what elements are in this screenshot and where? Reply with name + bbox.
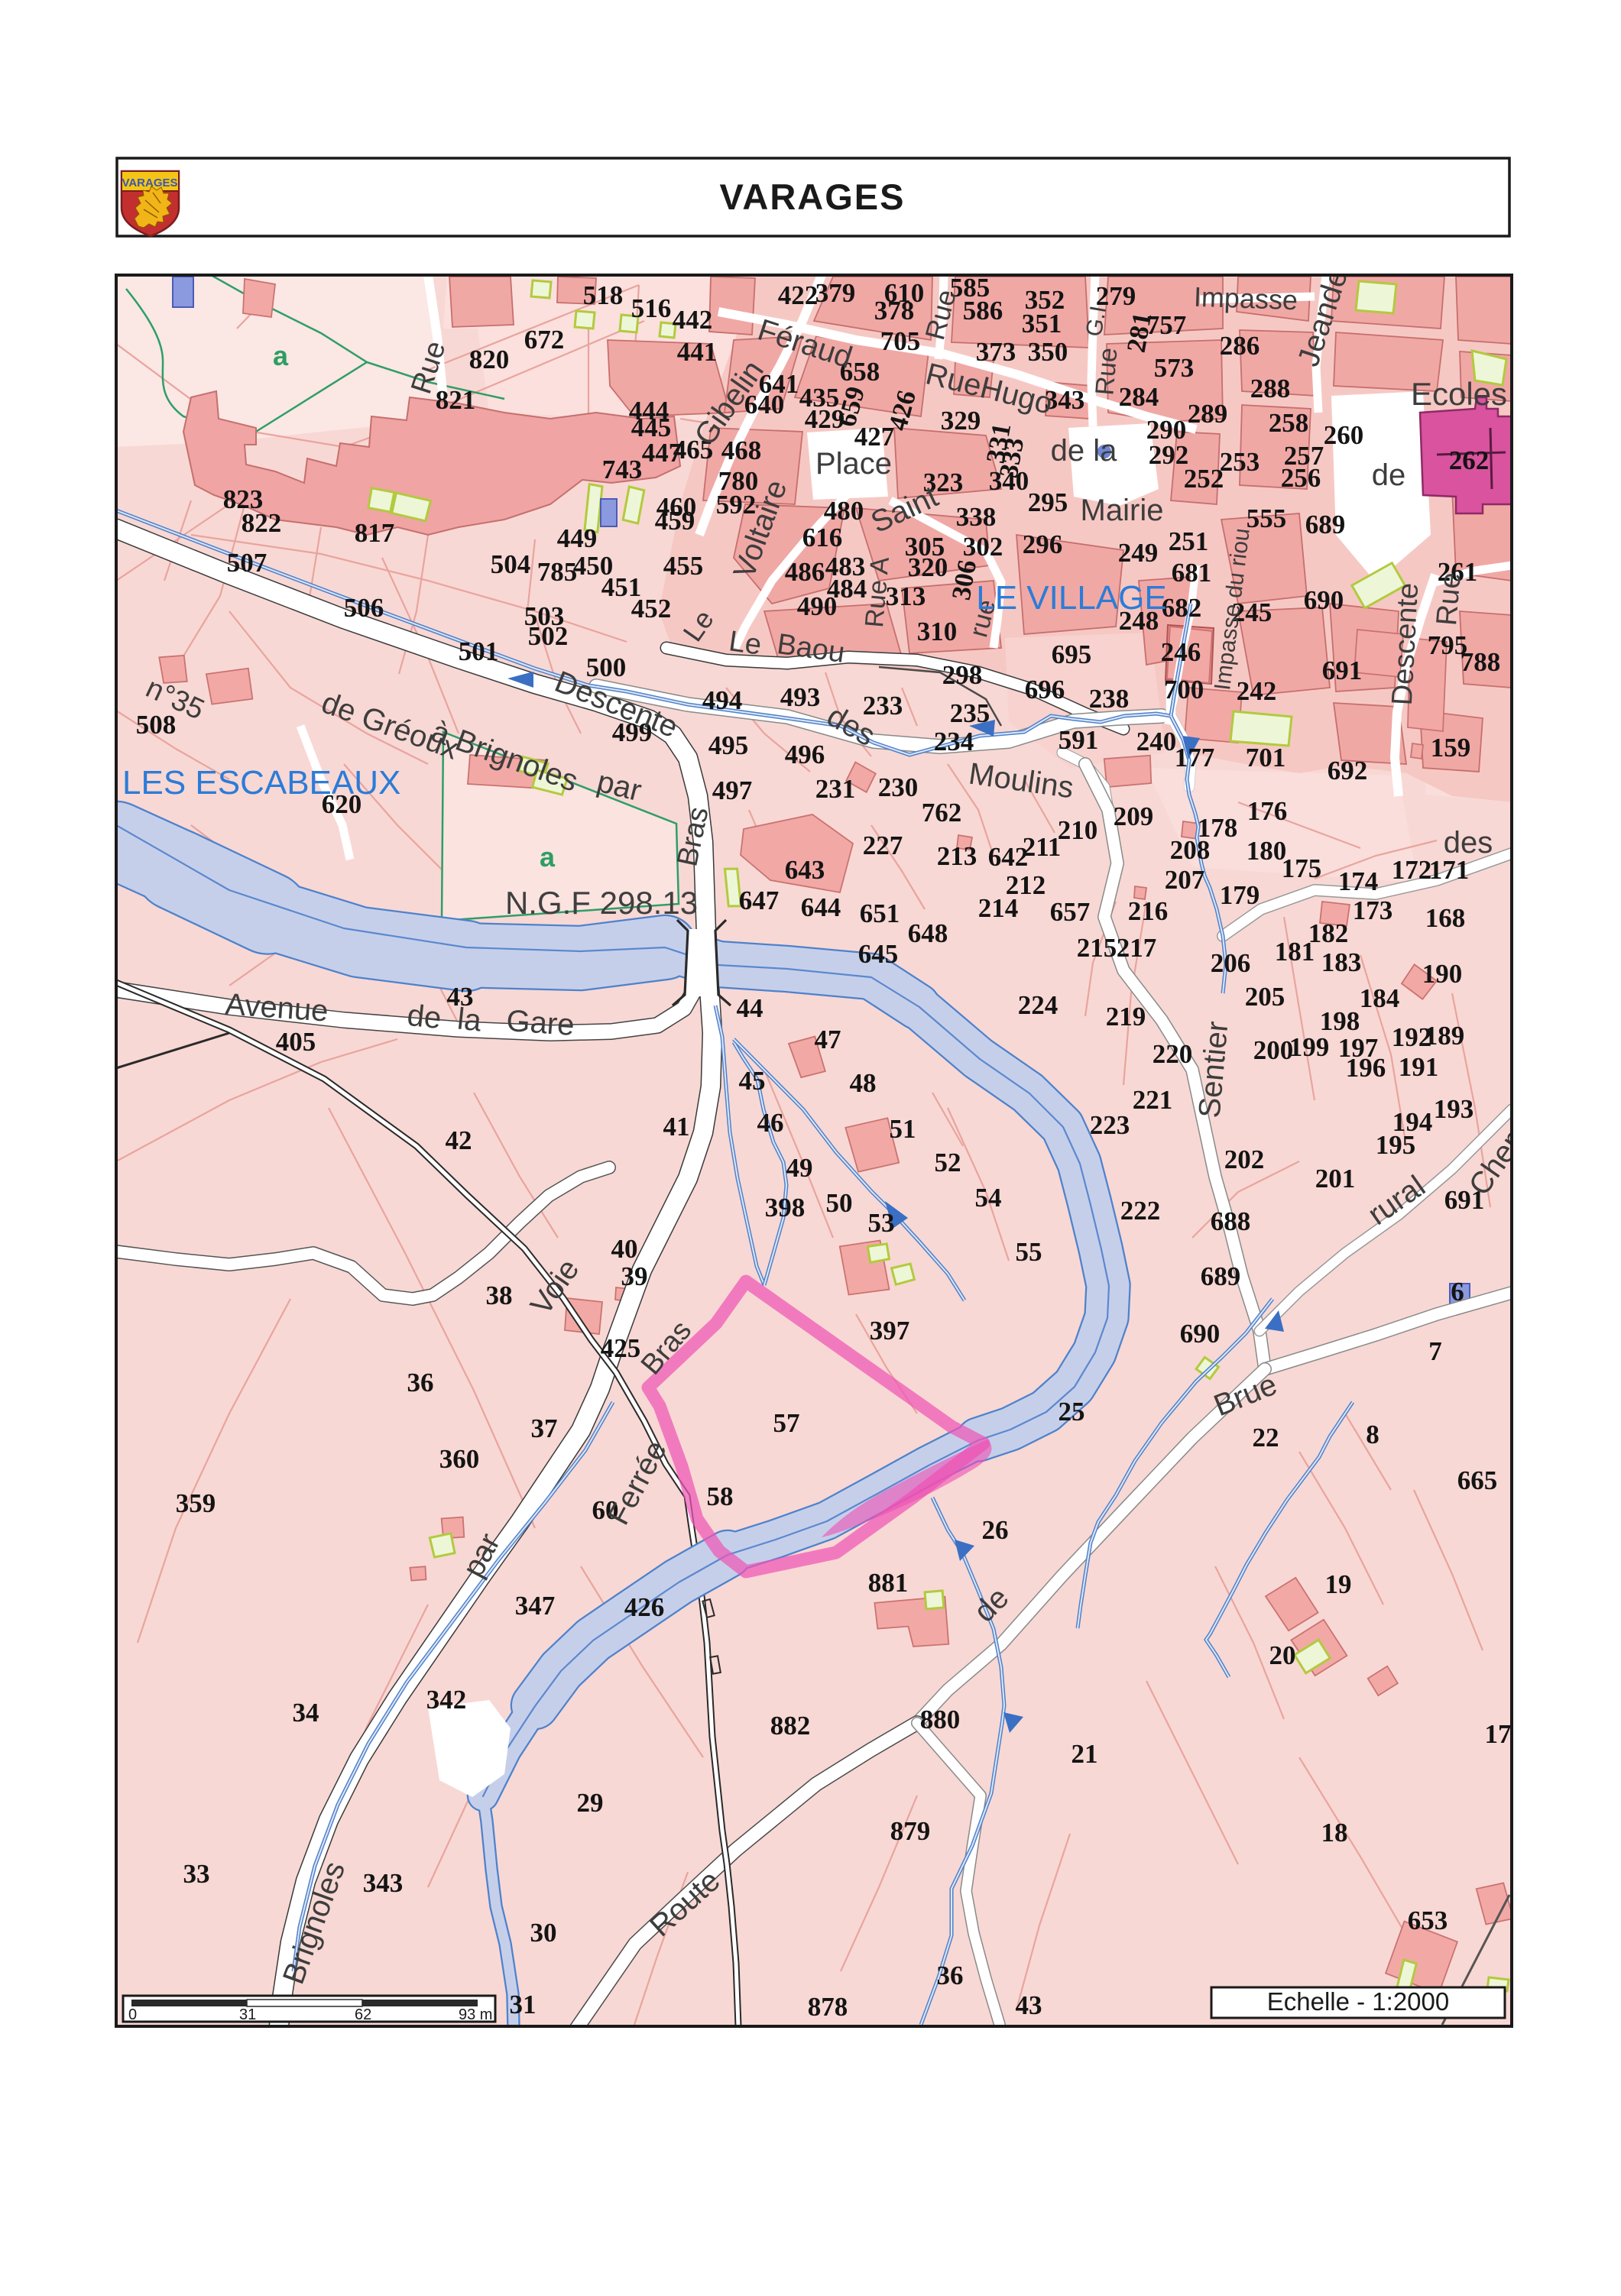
svg-text:50: 50 bbox=[826, 1188, 853, 1218]
svg-text:Gare: Gare bbox=[505, 1004, 575, 1042]
svg-text:690: 690 bbox=[1180, 1319, 1221, 1349]
svg-text:648: 648 bbox=[908, 918, 948, 948]
svg-text:262: 262 bbox=[1449, 445, 1490, 475]
svg-text:42: 42 bbox=[446, 1125, 472, 1155]
svg-text:41: 41 bbox=[663, 1112, 690, 1142]
svg-text:52: 52 bbox=[935, 1148, 961, 1177]
svg-text:230: 230 bbox=[878, 772, 919, 802]
svg-text:878: 878 bbox=[808, 1992, 848, 2022]
svg-text:17: 17 bbox=[1485, 1719, 1512, 1749]
svg-text:284: 284 bbox=[1119, 382, 1159, 412]
svg-text:189: 189 bbox=[1425, 1021, 1465, 1051]
svg-text:159: 159 bbox=[1431, 733, 1471, 763]
svg-text:26: 26 bbox=[982, 1515, 1009, 1545]
svg-text:de: de bbox=[406, 999, 443, 1035]
svg-text:0: 0 bbox=[128, 2006, 137, 2023]
svg-text:a: a bbox=[540, 841, 556, 873]
svg-text:405: 405 bbox=[276, 1027, 316, 1057]
svg-text:46: 46 bbox=[757, 1108, 784, 1138]
svg-text:VARAGES: VARAGES bbox=[720, 176, 906, 217]
svg-text:490: 490 bbox=[797, 591, 838, 621]
svg-text:643: 643 bbox=[785, 855, 825, 885]
svg-text:Avenue: Avenue bbox=[224, 987, 329, 1028]
svg-text:Ecoles: Ecoles bbox=[1411, 376, 1507, 412]
svg-text:LE VILLAGE: LE VILLAGE bbox=[976, 579, 1166, 617]
svg-text:688: 688 bbox=[1211, 1206, 1251, 1236]
svg-text:455: 455 bbox=[663, 551, 704, 581]
svg-text:452: 452 bbox=[631, 594, 672, 623]
svg-text:199: 199 bbox=[1289, 1032, 1330, 1062]
svg-text:494: 494 bbox=[702, 685, 743, 715]
svg-text:881: 881 bbox=[868, 1568, 909, 1598]
svg-text:34: 34 bbox=[293, 1698, 319, 1728]
svg-text:211: 211 bbox=[1023, 832, 1062, 862]
svg-text:449: 449 bbox=[557, 523, 598, 553]
svg-text:497: 497 bbox=[712, 776, 753, 805]
svg-text:223: 223 bbox=[1090, 1110, 1130, 1140]
svg-text:705: 705 bbox=[880, 326, 921, 356]
svg-text:647: 647 bbox=[739, 886, 780, 915]
svg-text:700: 700 bbox=[1164, 675, 1204, 704]
svg-text:817: 817 bbox=[355, 518, 395, 548]
svg-text:288: 288 bbox=[1250, 374, 1291, 403]
svg-text:379: 379 bbox=[815, 278, 856, 308]
svg-text:196: 196 bbox=[1346, 1053, 1386, 1083]
svg-text:49: 49 bbox=[786, 1153, 813, 1183]
svg-text:518: 518 bbox=[583, 280, 624, 310]
svg-text:31: 31 bbox=[510, 1990, 537, 2019]
svg-text:Place: Place bbox=[815, 447, 892, 481]
svg-text:373: 373 bbox=[976, 337, 1016, 367]
svg-text:215: 215 bbox=[1077, 933, 1117, 963]
svg-text:253: 253 bbox=[1220, 447, 1260, 477]
svg-text:31: 31 bbox=[239, 2006, 256, 2023]
svg-text:182: 182 bbox=[1308, 918, 1349, 948]
svg-text:338: 338 bbox=[956, 502, 997, 532]
svg-text:320: 320 bbox=[908, 552, 948, 582]
svg-text:201: 201 bbox=[1315, 1164, 1356, 1193]
svg-text:58: 58 bbox=[707, 1482, 734, 1511]
svg-text:180: 180 bbox=[1247, 836, 1287, 866]
svg-text:38: 38 bbox=[486, 1281, 513, 1310]
svg-text:502: 502 bbox=[528, 621, 569, 651]
svg-text:689: 689 bbox=[1305, 510, 1346, 539]
svg-text:Impasse: Impasse bbox=[1193, 281, 1298, 316]
svg-text:Rue A: Rue A bbox=[860, 555, 895, 629]
svg-text:672: 672 bbox=[524, 325, 565, 355]
svg-text:47: 47 bbox=[815, 1025, 841, 1054]
svg-text:347: 347 bbox=[515, 1591, 556, 1621]
svg-text:179: 179 bbox=[1220, 880, 1260, 910]
svg-text:681: 681 bbox=[1172, 558, 1212, 588]
svg-text:682: 682 bbox=[1162, 593, 1202, 623]
svg-text:30: 30 bbox=[530, 1918, 557, 1948]
svg-text:62: 62 bbox=[355, 2006, 371, 2023]
svg-text:822: 822 bbox=[242, 508, 282, 538]
svg-text:45: 45 bbox=[739, 1066, 766, 1096]
svg-text:8: 8 bbox=[1366, 1420, 1379, 1449]
svg-text:184: 184 bbox=[1360, 983, 1400, 1013]
svg-text:493: 493 bbox=[780, 682, 821, 712]
svg-text:279: 279 bbox=[1096, 281, 1136, 311]
svg-text:689: 689 bbox=[1201, 1261, 1241, 1291]
svg-text:19: 19 bbox=[1325, 1569, 1352, 1599]
svg-text:222: 222 bbox=[1120, 1196, 1161, 1226]
svg-text:359: 359 bbox=[176, 1488, 216, 1518]
svg-text:217: 217 bbox=[1117, 933, 1157, 963]
svg-text:501: 501 bbox=[459, 636, 499, 666]
svg-text:195: 195 bbox=[1376, 1130, 1416, 1160]
svg-text:G.I: G.I bbox=[1081, 304, 1111, 338]
svg-text:442: 442 bbox=[673, 305, 713, 335]
svg-text:VARAGES: VARAGES bbox=[122, 176, 177, 189]
svg-text:208: 208 bbox=[1170, 835, 1211, 865]
svg-text:459: 459 bbox=[655, 506, 695, 536]
svg-text:193: 193 bbox=[1434, 1094, 1474, 1124]
svg-text:29: 29 bbox=[577, 1788, 604, 1818]
svg-text:231: 231 bbox=[815, 774, 856, 804]
svg-text:398: 398 bbox=[765, 1193, 806, 1222]
svg-text:216: 216 bbox=[1128, 896, 1169, 926]
svg-text:653: 653 bbox=[1408, 1906, 1448, 1935]
svg-text:40: 40 bbox=[611, 1234, 638, 1264]
svg-text:252: 252 bbox=[1184, 464, 1224, 494]
svg-text:329: 329 bbox=[941, 406, 981, 436]
svg-text:441: 441 bbox=[677, 337, 718, 367]
svg-text:298: 298 bbox=[942, 660, 983, 690]
svg-text:Le: Le bbox=[727, 625, 763, 661]
svg-text:496: 496 bbox=[785, 740, 825, 769]
svg-text:260: 260 bbox=[1324, 420, 1364, 450]
svg-text:Rue: Rue bbox=[1431, 571, 1467, 627]
svg-text:586: 586 bbox=[963, 296, 1003, 325]
svg-text:397: 397 bbox=[870, 1316, 910, 1346]
svg-text:426: 426 bbox=[624, 1592, 665, 1622]
svg-text:54: 54 bbox=[975, 1183, 1002, 1213]
svg-text:504: 504 bbox=[491, 549, 531, 579]
svg-text:651: 651 bbox=[860, 899, 900, 928]
svg-text:18: 18 bbox=[1321, 1818, 1348, 1847]
svg-text:480: 480 bbox=[824, 496, 864, 526]
svg-text:55: 55 bbox=[1016, 1237, 1042, 1267]
svg-text:37: 37 bbox=[531, 1414, 558, 1443]
svg-text:645: 645 bbox=[858, 939, 899, 969]
svg-text:Mairie: Mairie bbox=[1081, 494, 1164, 527]
svg-text:LES ESCABEAUX: LES ESCABEAUX bbox=[122, 764, 400, 801]
svg-text:690: 690 bbox=[1304, 585, 1344, 615]
svg-text:351: 351 bbox=[1022, 309, 1062, 338]
svg-text:22: 22 bbox=[1253, 1423, 1279, 1452]
svg-text:507: 507 bbox=[227, 548, 267, 578]
svg-text:591: 591 bbox=[1059, 725, 1099, 755]
svg-text:43: 43 bbox=[1016, 1990, 1042, 2020]
svg-text:206: 206 bbox=[1211, 948, 1251, 978]
svg-text:des: des bbox=[1444, 826, 1493, 860]
svg-text:36: 36 bbox=[937, 1961, 964, 1990]
svg-text:36: 36 bbox=[407, 1368, 434, 1397]
svg-text:555: 555 bbox=[1247, 504, 1287, 533]
svg-text:616: 616 bbox=[802, 523, 843, 552]
svg-text:249: 249 bbox=[1118, 538, 1159, 568]
svg-text:310: 310 bbox=[917, 617, 958, 646]
svg-text:Descente: Descente bbox=[1386, 582, 1425, 707]
svg-text:177: 177 bbox=[1175, 743, 1215, 772]
svg-text:205: 205 bbox=[1245, 982, 1285, 1012]
svg-text:202: 202 bbox=[1224, 1145, 1265, 1174]
svg-text:251: 251 bbox=[1169, 526, 1209, 556]
svg-text:695: 695 bbox=[1052, 640, 1092, 669]
svg-text:51: 51 bbox=[890, 1114, 916, 1144]
svg-text:516: 516 bbox=[631, 293, 672, 323]
svg-text:a: a bbox=[273, 340, 289, 371]
svg-text:422: 422 bbox=[778, 280, 819, 310]
svg-text:343: 343 bbox=[363, 1868, 404, 1898]
svg-text:235: 235 bbox=[950, 698, 990, 728]
svg-text:644: 644 bbox=[801, 892, 841, 922]
svg-text:486: 486 bbox=[785, 557, 825, 587]
svg-text:de la: de la bbox=[1051, 434, 1117, 468]
svg-text:25: 25 bbox=[1059, 1397, 1085, 1426]
svg-text:240: 240 bbox=[1136, 727, 1177, 756]
svg-text:la: la bbox=[456, 1002, 483, 1038]
svg-text:227: 227 bbox=[863, 831, 903, 860]
svg-text:207: 207 bbox=[1165, 865, 1205, 895]
svg-text:696: 696 bbox=[1025, 675, 1065, 704]
svg-text:93 m: 93 m bbox=[459, 2006, 492, 2023]
svg-text:701: 701 bbox=[1246, 743, 1286, 772]
svg-text:200: 200 bbox=[1253, 1035, 1294, 1065]
svg-text:785: 785 bbox=[537, 557, 578, 587]
svg-text:173: 173 bbox=[1353, 895, 1393, 925]
svg-text:39: 39 bbox=[621, 1261, 648, 1291]
svg-text:762: 762 bbox=[922, 798, 962, 827]
svg-text:788: 788 bbox=[1461, 647, 1501, 677]
svg-text:743: 743 bbox=[602, 455, 643, 484]
svg-text:360: 360 bbox=[439, 1444, 480, 1474]
svg-text:238: 238 bbox=[1089, 684, 1130, 714]
svg-text:21: 21 bbox=[1071, 1739, 1098, 1769]
svg-text:6: 6 bbox=[1451, 1277, 1464, 1307]
svg-text:172: 172 bbox=[1392, 855, 1432, 885]
svg-text:N.G.F 298.13: N.G.F 298.13 bbox=[505, 885, 698, 921]
svg-text:425: 425 bbox=[601, 1333, 641, 1363]
svg-text:174: 174 bbox=[1338, 866, 1379, 896]
svg-text:495: 495 bbox=[708, 730, 749, 760]
svg-text:219: 219 bbox=[1106, 1002, 1146, 1031]
svg-text:506: 506 bbox=[344, 593, 384, 623]
svg-text:234: 234 bbox=[934, 727, 974, 756]
svg-text:224: 224 bbox=[1018, 990, 1059, 1020]
svg-text:258: 258 bbox=[1269, 408, 1309, 438]
svg-text:33: 33 bbox=[183, 1859, 210, 1889]
svg-text:242: 242 bbox=[1237, 676, 1277, 706]
svg-text:de: de bbox=[1372, 458, 1406, 492]
svg-text:342: 342 bbox=[426, 1685, 467, 1715]
svg-text:Rue: Rue bbox=[1090, 346, 1123, 396]
svg-text:Echelle - 1:2000: Echelle - 1:2000 bbox=[1267, 1987, 1450, 2016]
svg-text:468: 468 bbox=[721, 436, 762, 465]
svg-text:246: 246 bbox=[1161, 637, 1201, 667]
svg-text:879: 879 bbox=[890, 1816, 931, 1846]
svg-text:210: 210 bbox=[1058, 815, 1098, 845]
svg-text:44: 44 bbox=[737, 993, 763, 1023]
svg-text:183: 183 bbox=[1321, 947, 1362, 977]
svg-text:378: 378 bbox=[874, 296, 915, 325]
svg-text:48: 48 bbox=[850, 1068, 877, 1098]
svg-text:302: 302 bbox=[963, 532, 1003, 562]
svg-text:289: 289 bbox=[1188, 399, 1228, 429]
svg-text:190: 190 bbox=[1422, 959, 1463, 989]
svg-text:657: 657 bbox=[1050, 897, 1091, 927]
svg-text:176: 176 bbox=[1247, 796, 1288, 826]
svg-text:175: 175 bbox=[1282, 853, 1322, 883]
svg-text:213: 213 bbox=[937, 841, 977, 871]
svg-text:292: 292 bbox=[1149, 440, 1189, 470]
svg-text:221: 221 bbox=[1133, 1085, 1173, 1115]
svg-text:692: 692 bbox=[1328, 756, 1368, 785]
svg-text:7: 7 bbox=[1428, 1336, 1442, 1366]
svg-text:665: 665 bbox=[1457, 1465, 1498, 1495]
svg-text:295: 295 bbox=[1028, 487, 1068, 517]
svg-text:880: 880 bbox=[920, 1705, 961, 1734]
svg-text:20: 20 bbox=[1269, 1640, 1296, 1670]
svg-text:220: 220 bbox=[1153, 1039, 1193, 1069]
svg-text:57: 57 bbox=[773, 1408, 800, 1438]
svg-text:214: 214 bbox=[978, 893, 1019, 923]
svg-text:286: 286 bbox=[1220, 331, 1260, 361]
svg-text:820: 820 bbox=[469, 345, 510, 374]
svg-text:191: 191 bbox=[1399, 1052, 1439, 1082]
svg-text:256: 256 bbox=[1281, 463, 1321, 493]
svg-text:53: 53 bbox=[868, 1208, 895, 1238]
svg-text:882: 882 bbox=[770, 1711, 811, 1741]
svg-text:296: 296 bbox=[1023, 529, 1063, 559]
svg-text:350: 350 bbox=[1028, 337, 1068, 367]
svg-text:168: 168 bbox=[1425, 903, 1466, 933]
svg-text:691: 691 bbox=[1322, 656, 1363, 685]
svg-text:573: 573 bbox=[1154, 353, 1195, 383]
svg-text:209: 209 bbox=[1114, 801, 1154, 831]
svg-text:821: 821 bbox=[436, 385, 476, 415]
